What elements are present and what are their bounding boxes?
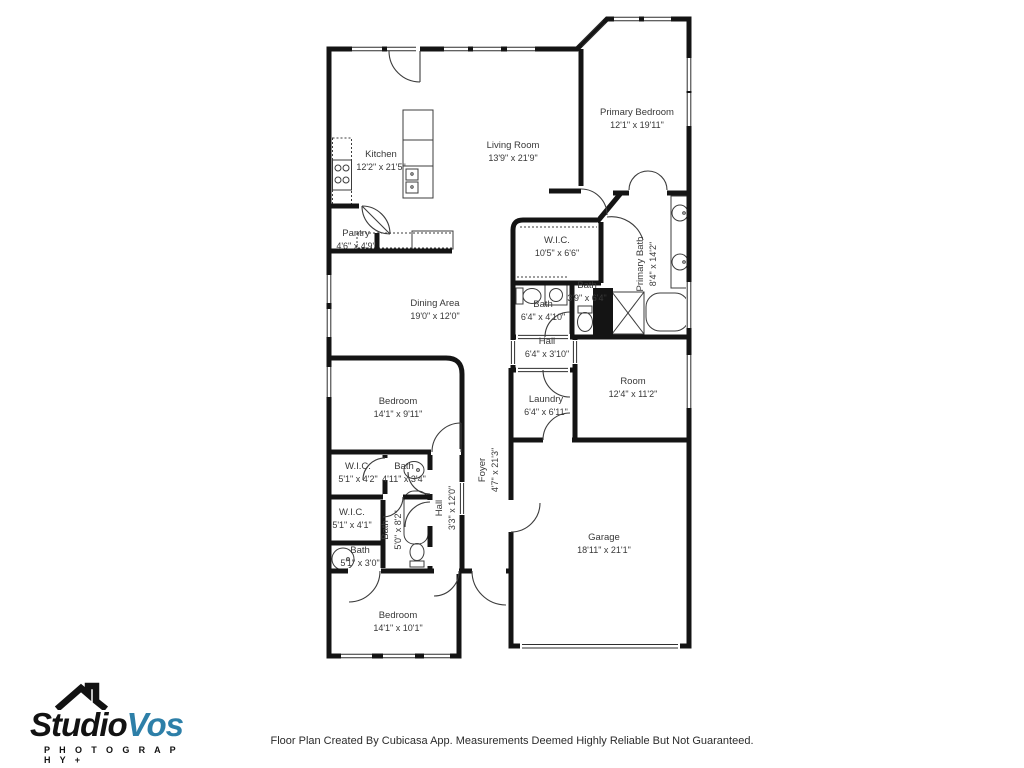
studiovos-logo: StudioVos P H O T O G R A P H Y + <box>30 682 180 765</box>
plumbing-wall <box>593 288 613 337</box>
bathtub-icon <box>646 293 689 331</box>
cased-openings <box>460 335 576 514</box>
floor-plan-drawing <box>0 0 1024 768</box>
toilet-icon <box>578 306 592 313</box>
toilet-icon <box>410 544 424 561</box>
door-openings-layer <box>348 46 667 574</box>
walls-layer <box>329 19 689 656</box>
disclaimer-text: Floor Plan Created By Cubicasa App. Meas… <box>0 735 1024 747</box>
sink-icon <box>332 548 354 570</box>
floor-plan-page: Kitchen12'2" x 21'5"Living Room13'9" x 2… <box>0 0 1024 768</box>
house-roof-icon <box>54 682 116 710</box>
logo-tagline: P H O T O G R A P H Y + <box>44 745 180 765</box>
vanity-icon <box>671 196 689 288</box>
stove-icon <box>333 160 352 190</box>
sink-icon <box>404 462 424 479</box>
toilet-icon <box>516 288 523 304</box>
